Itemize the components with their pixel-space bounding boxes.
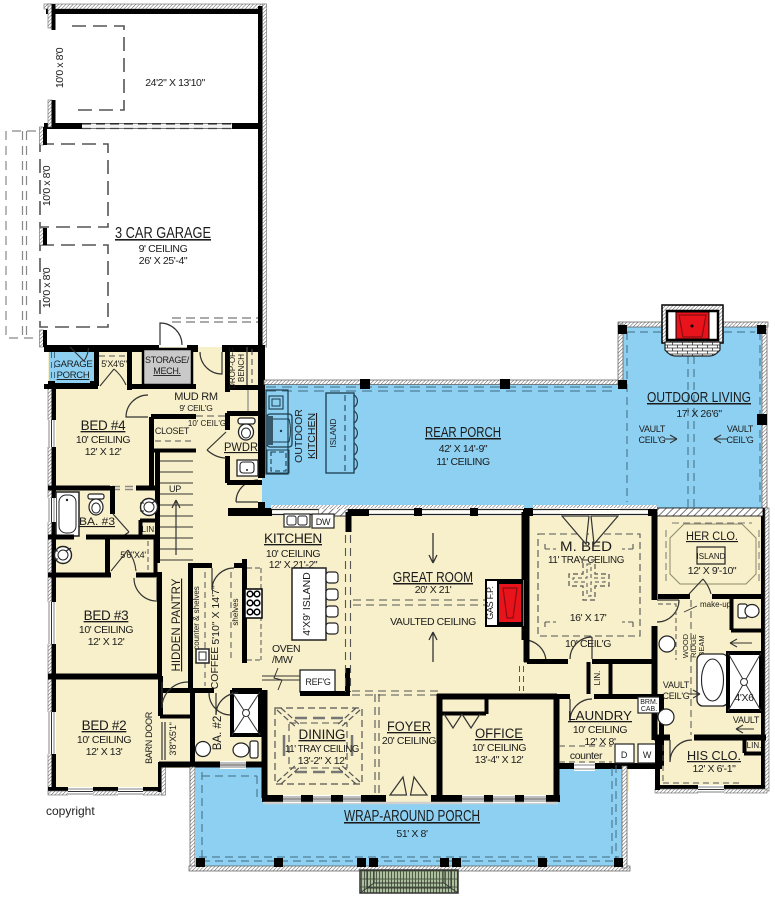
svg-text:BA. #2: BA. #2 xyxy=(212,716,224,751)
svg-text:4'X6: 4'X6 xyxy=(734,692,754,704)
svg-text:DROP-OFF: DROP-OFF xyxy=(228,347,237,389)
svg-text:11' TRAY CEILING: 11' TRAY CEILING xyxy=(548,554,624,566)
svg-text:CAB.: CAB. xyxy=(641,706,657,713)
svg-text:CEIL'G: CEIL'G xyxy=(727,435,754,445)
svg-text:42' X 14'-9": 42' X 14'-9" xyxy=(439,443,488,455)
svg-text:10' CEILING: 10' CEILING xyxy=(76,434,130,446)
svg-text:4'X9' ISLAND: 4'X9' ISLAND xyxy=(301,572,313,636)
svg-text:KITCHEN: KITCHEN xyxy=(264,531,322,546)
svg-text:HIDDEN PANTRY: HIDDEN PANTRY xyxy=(171,578,183,671)
svg-text:10'0 x 8'0: 10'0 x 8'0 xyxy=(41,267,53,308)
svg-text:BRM.: BRM. xyxy=(640,699,658,706)
svg-text:ISLAND: ISLAND xyxy=(697,552,726,561)
svg-text:UP: UP xyxy=(169,484,181,494)
svg-text:VAULT: VAULT xyxy=(727,424,754,434)
svg-text:BARN DOOR: BARN DOOR xyxy=(144,711,154,764)
svg-text:PORCH: PORCH xyxy=(57,370,90,381)
svg-text:5'10" X 14'7": 5'10" X 14'7" xyxy=(210,585,222,645)
svg-text:5'X4'6": 5'X4'6" xyxy=(101,359,127,369)
svg-text:12' X 9'-10": 12' X 9'-10" xyxy=(688,565,737,577)
svg-text:D: D xyxy=(621,750,628,760)
svg-text:STORAGE/: STORAGE/ xyxy=(145,355,190,365)
svg-text:10' CEIL'G: 10' CEIL'G xyxy=(565,638,611,650)
svg-text:3'8"X5'1": 3'8"X5'1" xyxy=(168,722,178,755)
svg-text:24'2" X 13'10": 24'2" X 13'10" xyxy=(145,77,205,89)
svg-text:DW: DW xyxy=(316,517,331,527)
svg-text:10'0 x 8'0: 10'0 x 8'0 xyxy=(54,47,66,88)
svg-text:16' X 17': 16' X 17' xyxy=(570,612,607,624)
svg-text:12' X 12': 12' X 12' xyxy=(88,636,125,648)
svg-text:HIS CLO.: HIS CLO. xyxy=(687,749,741,763)
svg-text:LAUNDRY: LAUNDRY xyxy=(568,708,632,723)
svg-text:W: W xyxy=(643,750,652,760)
svg-text:10' CEILING: 10' CEILING xyxy=(573,724,627,736)
svg-text:10'0 x 8'0: 10'0 x 8'0 xyxy=(41,165,53,206)
svg-text:12' X 13': 12' X 13' xyxy=(86,746,123,758)
svg-text:3 CAR GARAGE: 3 CAR GARAGE xyxy=(115,225,211,242)
svg-text:9' CEIL'G: 9' CEIL'G xyxy=(179,403,212,413)
svg-text:CEIL'G: CEIL'G xyxy=(639,435,666,445)
svg-text:GARAGE: GARAGE xyxy=(54,359,93,370)
svg-text:GAS F.P.: GAS F.P. xyxy=(485,586,495,619)
svg-text:counter: counter xyxy=(570,750,603,762)
svg-text:20' CEILING: 20' CEILING xyxy=(382,735,436,747)
svg-text:shelves: shelves xyxy=(231,598,240,625)
svg-text:REAR PORCH: REAR PORCH xyxy=(425,424,501,441)
svg-text:/MW: /MW xyxy=(272,654,293,666)
svg-text:BED #3: BED #3 xyxy=(84,608,129,623)
svg-text:WRAP-AROUND PORCH: WRAP-AROUND PORCH xyxy=(344,808,480,825)
svg-text:PWDR: PWDR xyxy=(224,442,258,454)
svg-text:51' X 8': 51' X 8' xyxy=(396,828,428,840)
svg-text:FOYER: FOYER xyxy=(387,719,431,734)
svg-text:CEIL'G: CEIL'G xyxy=(663,691,690,701)
svg-text:ISLAND: ISLAND xyxy=(329,418,338,447)
svg-text:17' X 26'6": 17' X 26'6" xyxy=(676,408,722,420)
svg-text:11' TRAY CEILING: 11' TRAY CEILING xyxy=(285,743,359,755)
svg-text:10' CEILING: 10' CEILING xyxy=(79,624,133,636)
svg-text:BED #2: BED #2 xyxy=(82,718,127,733)
svg-text:COFFEE: COFFEE xyxy=(209,647,221,690)
svg-text:BA. #3: BA. #3 xyxy=(79,516,115,528)
svg-text:VAULT: VAULT xyxy=(733,715,760,725)
svg-text:REF'G: REF'G xyxy=(305,677,331,687)
svg-text:12' X 12': 12' X 12' xyxy=(85,446,122,458)
svg-text:CLOSET: CLOSET xyxy=(155,426,190,436)
svg-text:10' CEILING: 10' CEILING xyxy=(472,742,526,754)
svg-text:11' CEILING: 11' CEILING xyxy=(436,456,490,468)
svg-text:12' X 6'-1": 12' X 6'-1" xyxy=(692,763,736,775)
svg-text:13'-4" X 12': 13'-4" X 12' xyxy=(475,754,524,766)
svg-text:26' X 25'-4": 26' X 25'-4" xyxy=(139,255,188,267)
svg-text:LIN.: LIN. xyxy=(747,741,762,750)
svg-text:LIN.: LIN. xyxy=(142,525,157,534)
svg-text:BED #4: BED #4 xyxy=(81,418,127,433)
svg-text:VAULT: VAULT xyxy=(639,424,666,434)
svg-text:9' CEILING: 9' CEILING xyxy=(139,243,188,255)
svg-text:VAULT: VAULT xyxy=(663,680,690,690)
svg-text:10' CEILING: 10' CEILING xyxy=(77,734,131,746)
svg-text:BENCH: BENCH xyxy=(237,354,246,382)
svg-text:make-up: make-up xyxy=(700,600,732,609)
svg-text:20' X 21': 20' X 21' xyxy=(415,584,452,596)
svg-text:VAULTED CEILING: VAULTED CEILING xyxy=(390,616,476,628)
svg-text:MECH.: MECH. xyxy=(153,366,181,376)
svg-text:OFFICE: OFFICE xyxy=(475,726,523,741)
svg-text:KITCHEN: KITCHEN xyxy=(306,413,318,459)
svg-text:LIN.: LIN. xyxy=(593,671,602,686)
svg-text:13'-2" X 12': 13'-2" X 12' xyxy=(298,755,347,767)
svg-text:copyright: copyright xyxy=(46,804,95,818)
svg-text:10' CEIL'G: 10' CEIL'G xyxy=(188,419,226,428)
svg-text:OUTDOOR: OUTDOOR xyxy=(293,409,305,463)
svg-text:MUD RM: MUD RM xyxy=(174,391,218,403)
svg-text:OUTDOOR LIVING: OUTDOOR LIVING xyxy=(647,389,751,406)
svg-text:DINING: DINING xyxy=(299,727,346,742)
svg-text:counter & shelves: counter & shelves xyxy=(192,586,201,650)
svg-text:HER CLO.: HER CLO. xyxy=(686,531,738,543)
